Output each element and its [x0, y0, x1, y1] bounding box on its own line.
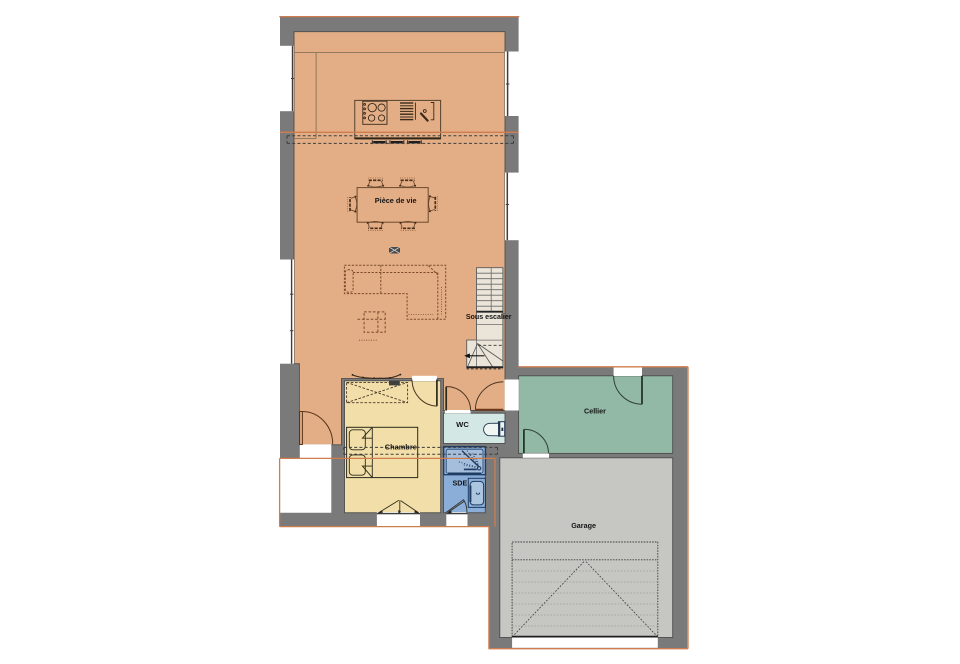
svg-text:Pièce de vie: Pièce de vie	[375, 196, 417, 205]
svg-text:Chambre: Chambre	[385, 442, 417, 451]
svg-text:Garage: Garage	[571, 521, 596, 530]
svg-text:Sous escalier: Sous escalier	[466, 313, 512, 321]
svg-text:SDE: SDE	[453, 479, 468, 488]
svg-text:WC: WC	[456, 420, 469, 429]
svg-text:Cellier: Cellier	[584, 407, 606, 416]
